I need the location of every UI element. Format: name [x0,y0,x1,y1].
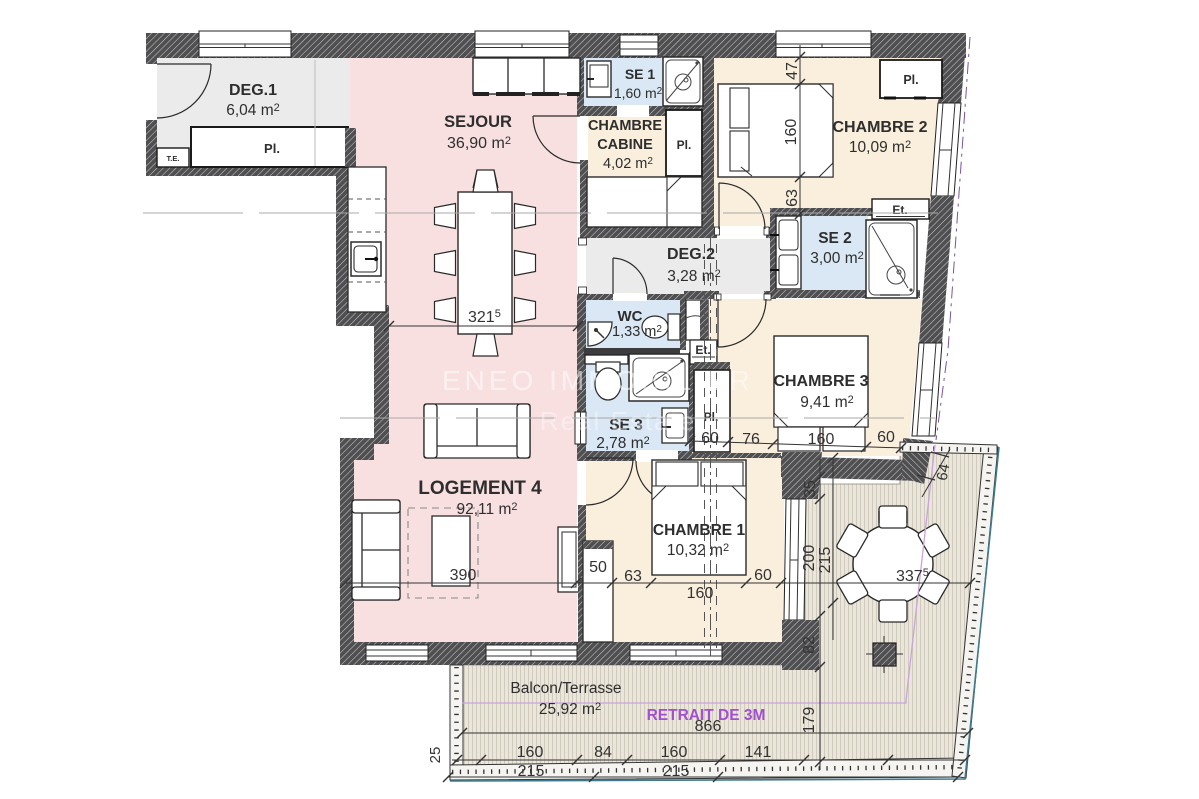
svg-text:RETRAIT DE 3M: RETRAIT DE 3M [647,707,766,724]
svg-text:160: 160 [661,744,688,761]
svg-text:60: 60 [701,430,719,447]
svg-text:Real Estate: Real Estate [540,406,696,436]
svg-text:DEG.2: DEG.2 [667,246,715,263]
svg-text:60: 60 [877,429,895,446]
svg-text:DEG.1: DEG.1 [229,82,277,99]
svg-text:10,09 m2: 10,09 m2 [849,139,911,156]
svg-text:47: 47 [784,62,801,80]
svg-text:82: 82 [801,636,818,654]
svg-text:4,02 m2: 4,02 m2 [603,156,653,172]
svg-text:ENEO IMMOBILIER: ENEO IMMOBILIER [442,365,754,396]
svg-text:Balcon/Terrasse: Balcon/Terrasse [510,680,621,697]
svg-text:CHAMBRE 1: CHAMBRE 1 [653,522,746,539]
svg-text:50: 50 [589,559,607,576]
svg-text:3,00 m2: 3,00 m2 [810,250,864,267]
svg-text:Et.: Et. [695,343,710,357]
svg-text:Pl.: Pl. [264,141,280,156]
svg-text:1,33 m2: 1,33 m2 [612,324,662,340]
svg-text:63: 63 [624,568,642,585]
svg-text:200: 200 [801,545,818,572]
svg-text:Pl.: Pl. [903,73,918,87]
svg-text:215: 215 [518,763,545,780]
svg-text:160: 160 [783,119,800,146]
svg-text:63: 63 [784,189,801,207]
svg-text:215: 215 [817,547,834,574]
svg-text:25: 25 [427,747,444,764]
svg-text:LOGEMENT 4: LOGEMENT 4 [418,478,542,499]
svg-text:SE 2: SE 2 [818,230,852,247]
svg-text:60: 60 [754,567,772,584]
svg-text:SEJOUR: SEJOUR [444,113,512,131]
svg-text:64: 64 [934,463,954,482]
svg-text:215: 215 [663,763,690,780]
svg-text:Pl.: Pl. [677,138,692,152]
svg-text:390: 390 [450,567,477,584]
svg-text:84: 84 [594,744,612,761]
svg-text:CABINE: CABINE [597,137,653,153]
svg-text:6,04 m2: 6,04 m2 [226,102,280,119]
svg-text:179: 179 [801,707,818,734]
svg-text:SE 1: SE 1 [625,66,656,82]
svg-text:160: 160 [808,431,835,448]
svg-text:36,90 m2: 36,90 m2 [447,135,511,152]
svg-text:141: 141 [745,744,772,761]
svg-text:T.E.: T.E. [167,154,180,163]
svg-text:2,78 m2: 2,78 m2 [596,435,650,452]
svg-text:Et.: Et. [892,203,907,217]
svg-text:25,92 m2: 25,92 m2 [539,701,601,718]
svg-text:35: 35 [802,480,819,498]
svg-text:76: 76 [742,431,760,448]
svg-text:WC: WC [618,308,643,325]
svg-text:10,32 m2: 10,32 m2 [667,542,729,559]
svg-text:1,60 m2: 1,60 m2 [614,85,663,101]
svg-text:CHAMBRE 2: CHAMBRE 2 [832,119,927,136]
svg-text:CHAMBRE: CHAMBRE [588,118,662,134]
svg-text:9,41 m2: 9,41 m2 [800,394,854,411]
svg-text:92,11 m2: 92,11 m2 [457,501,518,518]
svg-text:160: 160 [687,585,714,602]
svg-text:160: 160 [517,744,544,761]
svg-text:3,28 m2: 3,28 m2 [667,268,721,285]
svg-text:CHAMBRE 3: CHAMBRE 3 [773,373,868,390]
